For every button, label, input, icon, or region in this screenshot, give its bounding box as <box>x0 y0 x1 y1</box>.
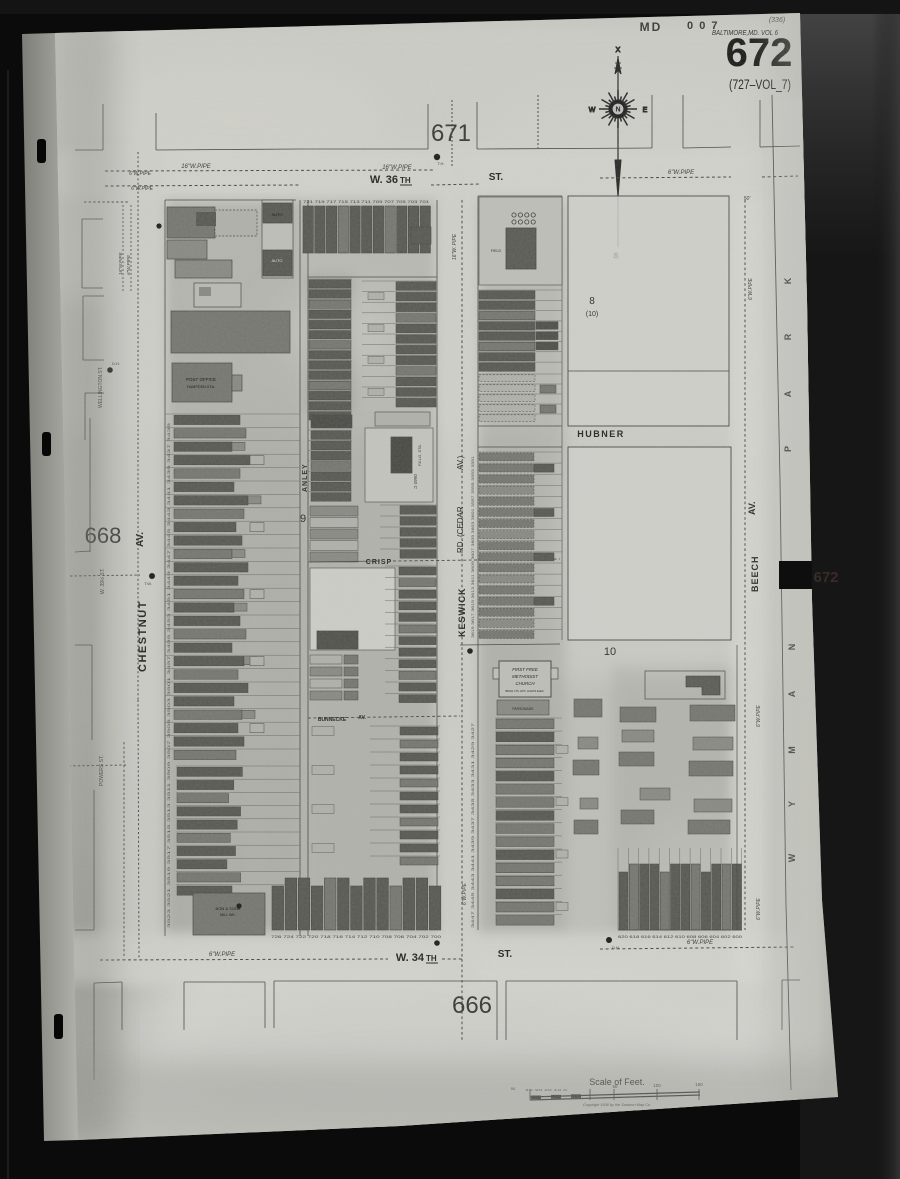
svg-text:672: 672 <box>813 569 838 586</box>
